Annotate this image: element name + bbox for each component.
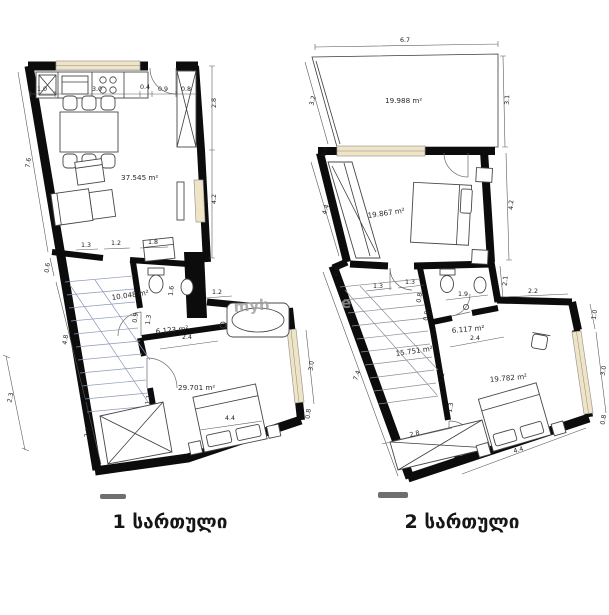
nightstand-icon [476, 442, 491, 457]
room-area-label: 19.988 m² [385, 96, 422, 105]
dim-label: 2.2 [528, 288, 538, 295]
room-area-label: 10.048 m² [111, 288, 149, 302]
dim-label: 0.8 [416, 292, 425, 303]
coffee-table-icon [89, 189, 116, 219]
dim-label: 1.8 [148, 239, 158, 246]
watermark-fragment: e [341, 294, 351, 312]
tv-icon [177, 182, 184, 220]
room-area-label: 37.545 m² [121, 173, 158, 182]
dim-label: 4.2 [508, 200, 516, 210]
dim-label: 2.4 [182, 334, 192, 341]
dim-label: 7.4 [352, 370, 362, 382]
washbasin-icon [181, 279, 193, 295]
dim-label: 0.6 [44, 262, 52, 273]
dim-label: 4.2 [211, 194, 218, 204]
dim-label: 0.8 [600, 414, 609, 425]
toilet-icon [441, 276, 454, 293]
dim-label: 1.6 [168, 286, 176, 297]
nightstand-icon [551, 421, 566, 436]
dim-label: 0.8 [181, 86, 191, 93]
dim-label: 2.1 [502, 276, 510, 287]
dim-label: 3.1 [504, 95, 512, 105]
bedroom-window [287, 329, 304, 403]
plan2-floor-label: 2 სართული [405, 511, 520, 533]
dim-label: 0.9 [132, 312, 140, 323]
dim-label: 6.7 [400, 37, 410, 44]
toilet-icon [149, 275, 163, 293]
watermark-fragment: myh [233, 295, 270, 315]
terrace-door-arc [444, 153, 468, 177]
dim-label: 0.9 [158, 86, 168, 93]
dim-label: 1.0 [591, 309, 600, 320]
toilet-tank [440, 269, 455, 275]
dim-label: 1.3 [145, 314, 154, 325]
room-area-label: 19.867 m² [367, 206, 405, 220]
plan2: 6.7 3.1 4.2 1.0 3.0 0.8 3.2 0.4 4.4 0.8 … [305, 37, 608, 478]
dim-label: 1.2 [437, 372, 446, 383]
room-area-label: 29.701 m² [178, 383, 215, 392]
dim-label: 4.4 [321, 204, 330, 216]
dim-label: 1.3 [81, 242, 91, 249]
nightstand-icon [267, 424, 281, 438]
toilet-tank [148, 268, 164, 275]
dim-label: 1.3 [405, 279, 415, 286]
floorplan-page: 1.0 3.0 0.4 0.9 0.8 2.8 4.2 7.6 0.6 4.8 … [0, 0, 609, 615]
bedroom-door-arc [147, 358, 177, 388]
dining-table [60, 112, 118, 152]
dim-label: 1.2 [212, 289, 222, 296]
dim-label: 1.2 [111, 240, 121, 247]
dim-label: 3.0 [308, 361, 316, 372]
plan1-wardrobe-icon [100, 402, 172, 464]
room-area-label: 15.751 m² [395, 344, 433, 358]
dim-label: 7.6 [25, 157, 33, 168]
dim-label: 2.3 [6, 392, 15, 403]
dim-label: 3.0 [600, 365, 609, 376]
dim-label: 0.8 [305, 409, 313, 420]
plan2-bath [440, 269, 486, 310]
plan1-floor-label: 1 სართული [113, 511, 228, 533]
dim-label: 4.4 [225, 415, 235, 422]
room-area-label: 6.117 m² [451, 323, 485, 335]
room-area-label: 19.782 m² [489, 372, 527, 384]
plan1: 1.0 3.0 0.4 0.9 0.8 2.8 4.2 7.6 0.6 4.8 … [3, 61, 316, 471]
pillow-icon [460, 189, 472, 214]
nightstand-icon [188, 441, 202, 455]
dim-label: 0.4 [320, 146, 329, 157]
dim-label: 1.9 [458, 291, 468, 298]
edge-marks [100, 492, 408, 499]
dim-label: 4.4 [513, 446, 525, 455]
living-window [194, 180, 205, 222]
armchair-icon [75, 159, 105, 186]
plan2-wardrobe-icon [390, 420, 490, 470]
washbasin-icon [474, 277, 486, 293]
dim-label: 1.3 [446, 402, 455, 413]
dim-label: 0.4 [140, 84, 150, 91]
dim-label: 1.3 [373, 283, 383, 290]
dim-label: 2.4 [470, 335, 480, 342]
dim-label: 4.8 [62, 334, 71, 345]
nightstand-icon [472, 249, 489, 264]
nightstand-icon [476, 168, 493, 183]
floorplan-drawing: 1.0 3.0 0.4 0.9 0.8 2.8 4.2 7.6 0.6 4.8 … [0, 0, 609, 615]
chair-icon [531, 334, 548, 350]
dim-label: 3.0 [92, 86, 102, 93]
dim-label: 1.0 [37, 86, 47, 93]
dim-label: 2.8 [211, 98, 218, 108]
oven-icon [62, 76, 88, 94]
dim-label: 3.2 [308, 95, 317, 106]
